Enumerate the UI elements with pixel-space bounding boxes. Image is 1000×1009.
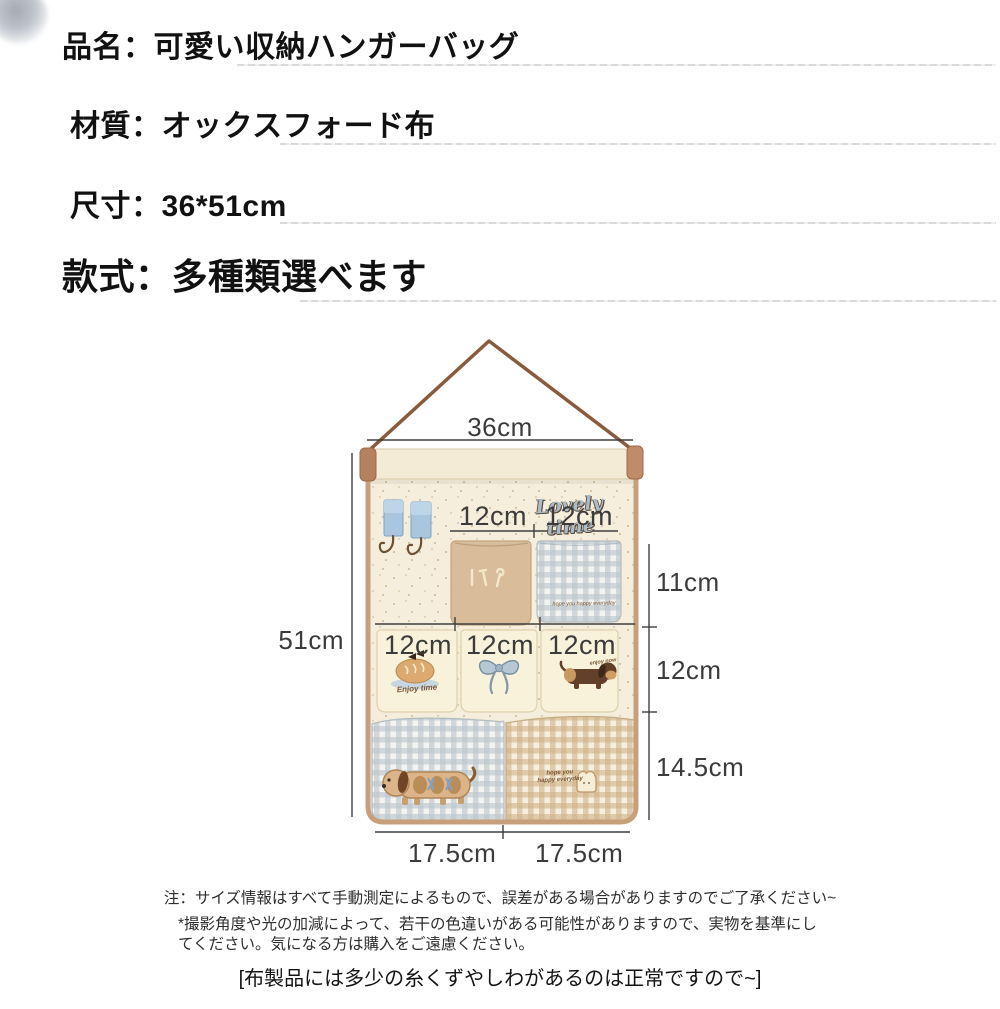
dimension-label-bottom-1: 17.5cm: [408, 838, 494, 869]
dimension-label-left-height: 51cm: [268, 625, 344, 656]
dimension-label-right-3: 14.5cm: [656, 752, 744, 783]
roll-cap-right: [627, 446, 643, 479]
pocket-stitch-text-small-gingham: hope you happy everyday: [548, 600, 620, 607]
dimension-label-row2-1: 12cm: [378, 630, 458, 661]
pocket-stitch-text-large-gingham: hope you happy everyday: [535, 769, 586, 786]
roll-cap-left: [360, 448, 376, 481]
dimension-label-top-width: 36cm: [455, 412, 545, 443]
note-measurement: 注：サイズ情報はすべて手動測定によるもので、誤差がある場合がありますのでご了承く…: [0, 886, 1000, 908]
roll-shadow: [368, 479, 636, 484]
dimension-label-row2-3: 12cm: [541, 630, 623, 661]
note-color-difference: *撮影角度や光の加減によって、若干の色違いがある可能性がありますので、実物を基準…: [178, 915, 828, 955]
note-fabric: [布製品には多少の糸くずやしわがあるのは正常ですので~]: [0, 962, 1000, 991]
product-spec-page: 品名：可愛い収納ハンガーバッグ 材質：オックスフォード布 尺寸：36*51cm …: [0, 0, 1000, 1009]
dimension-label-row1-1: 12cm: [452, 501, 534, 532]
top-roll: [360, 449, 643, 479]
dimension-label-row2-2: 12cm: [459, 630, 541, 661]
pocket-row3-gingham-tan: [506, 714, 634, 822]
dimension-label-right-2: 12cm: [656, 655, 722, 686]
dimension-label-row1-2: 12cm: [537, 501, 621, 532]
dimension-label-bottom-2: 17.5cm: [535, 838, 621, 869]
pocket-row1-tan: [451, 541, 531, 625]
pocket-row3-gingham-blue: [372, 716, 504, 822]
dimension-label-right-1: 11cm: [656, 567, 720, 598]
pocket-row1-gingham: [537, 541, 621, 622]
